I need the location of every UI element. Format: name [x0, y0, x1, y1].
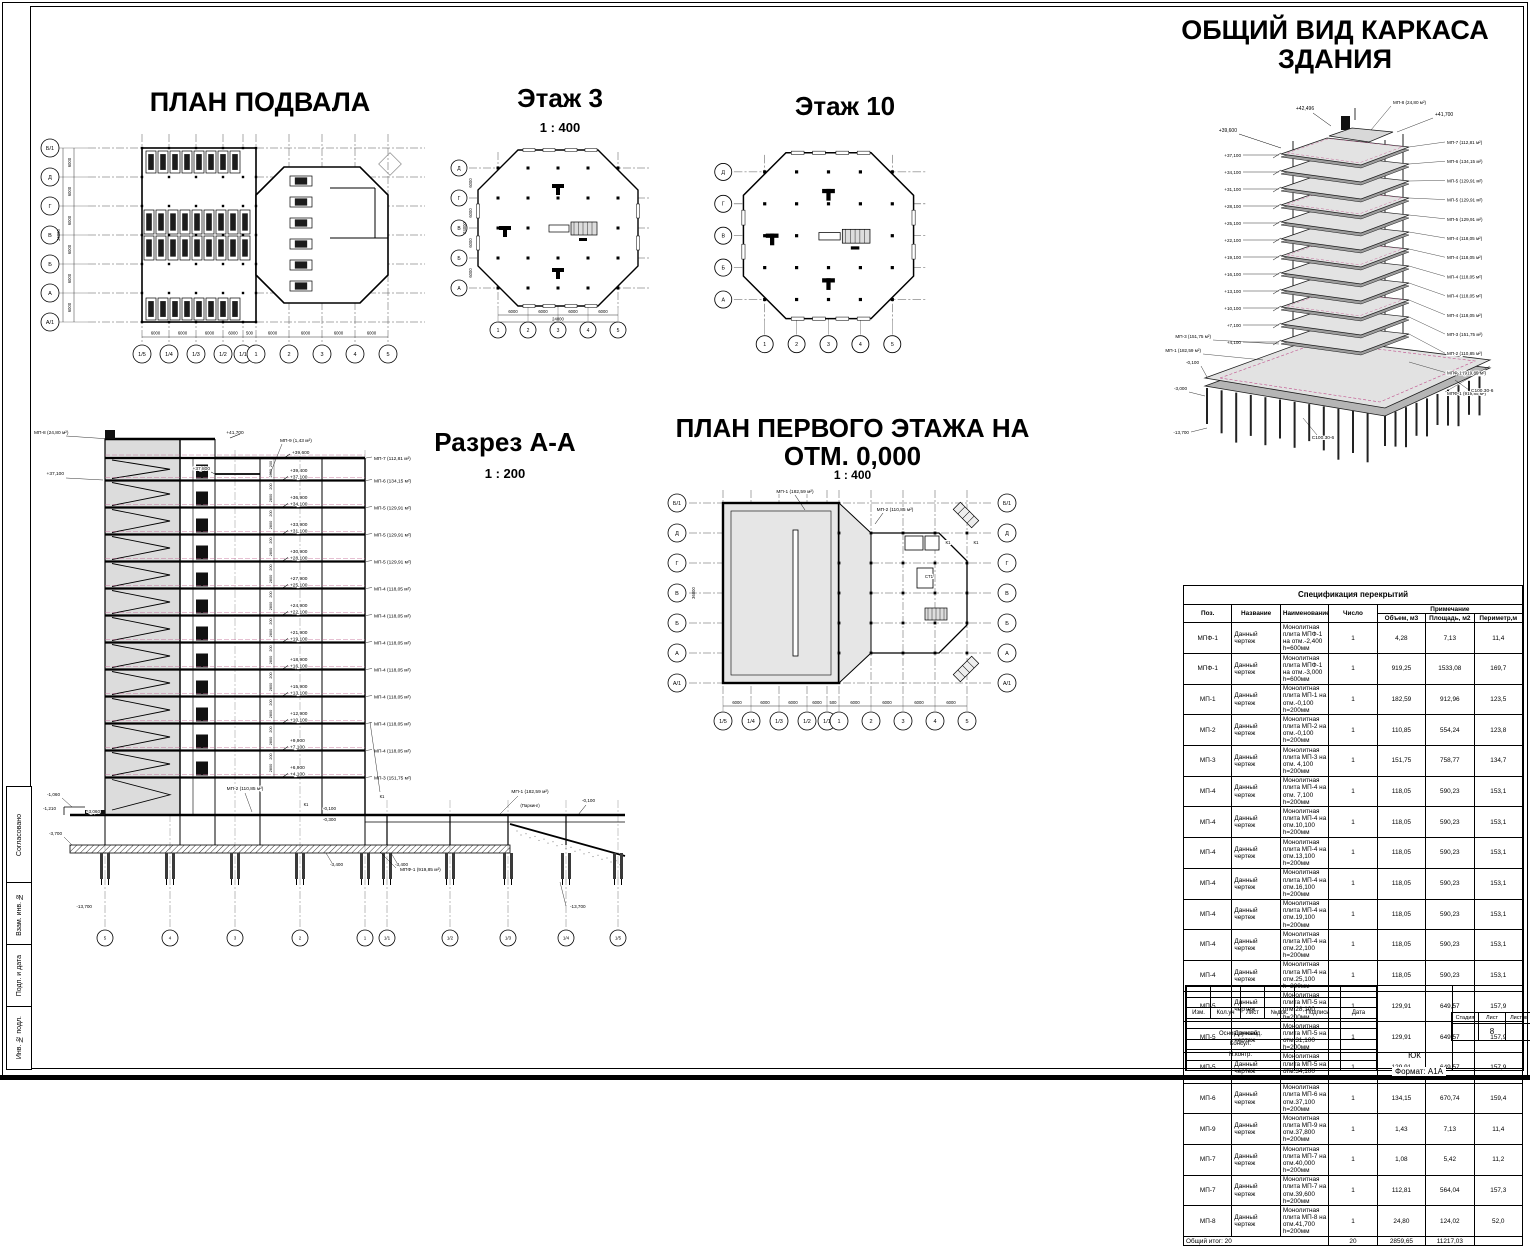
column [902, 532, 905, 535]
slab-label: МП-4 (118,05 м²) [374, 695, 411, 701]
spec-table: Спецификация перекрытий Поз. Название На… [1183, 585, 1523, 1246]
elevation-label: +39,600 [1219, 128, 1237, 134]
pile [295, 853, 298, 879]
edge-opening [836, 317, 849, 320]
spec-cell: Монолитная плита МП-2 на отм.-0,100 h=20… [1280, 715, 1328, 746]
elevation-label: -3,000 [1174, 386, 1187, 391]
line [1273, 170, 1281, 175]
spec-col-note: Примечание [1377, 605, 1522, 614]
leader-line [1409, 266, 1445, 276]
column [966, 622, 969, 625]
spec-total-volume: 2859,65 [1377, 1237, 1425, 1246]
static-element: Поз. Название Наименование Число Примеча… [1184, 605, 1523, 614]
spec-cell: 118,05 [1377, 838, 1425, 869]
leader-line [366, 507, 372, 508]
listov-header: Листов [1506, 1013, 1530, 1024]
spec-cell: 670,74 [1426, 1083, 1474, 1114]
axis-bubble-label: 1/2 [447, 936, 454, 941]
edge-opening [565, 305, 577, 308]
leader-line [366, 480, 372, 481]
slab-label: МП-1 (182,59 м²) [776, 489, 814, 495]
column [891, 234, 894, 237]
axis-bubble-label: 1/2 [803, 719, 811, 725]
spec-cell: Данный чертеж [1232, 654, 1280, 685]
spec-cell: 153,1 [1474, 807, 1522, 838]
axis-bubble-label: 1/3 [192, 352, 200, 358]
spec-cell: МПФ-1 [1184, 623, 1232, 654]
column [222, 292, 224, 294]
spec-cell: Данный чертеж [1232, 623, 1280, 654]
dimension-text: 6000 [468, 238, 473, 248]
slab-label: МП-8 (24,80 м²) [1393, 100, 1426, 105]
spec-cell: 153,1 [1474, 899, 1522, 930]
spec-col-volume: Объем, м3 [1377, 614, 1425, 623]
car-symbol [160, 154, 166, 170]
axis-bubble-label: Г [49, 204, 52, 210]
elevation-label: -13,700 [76, 904, 92, 909]
axis-bubble-label: Д [721, 170, 725, 176]
edge-opening [813, 317, 826, 320]
elevation-label: -0,300 [323, 817, 336, 822]
spec-row: МП-1Данный чертежМонолитная плита МП-1 н… [1184, 684, 1523, 715]
column-label: К1 [946, 540, 952, 545]
leader-line [1239, 134, 1281, 148]
spec-cell: Данный чертеж [1232, 1145, 1280, 1176]
column [255, 263, 257, 265]
column [838, 652, 841, 655]
column [838, 532, 841, 535]
dimension-text: 2800 [269, 737, 273, 745]
dimension-text: 6000 [178, 331, 188, 336]
dimension-text: 6000 [301, 331, 311, 336]
leader-line [366, 777, 372, 778]
column [242, 292, 244, 294]
column [617, 287, 620, 290]
spec-cell: 919,25 [1377, 654, 1425, 685]
line [1273, 340, 1281, 345]
spec-row: МП-9Данный чертежМонолитная плита МП-9 н… [1184, 1114, 1523, 1145]
dimension-text: 6000 [468, 178, 473, 188]
slab-label: МП-3 (151,75 м²) [1447, 332, 1483, 337]
elevator-door [196, 600, 208, 614]
stamp-approved: Согласовано [6, 786, 32, 884]
dimension-text: 6000 [228, 331, 238, 336]
title-block-cell [1295, 1029, 1341, 1040]
column [497, 197, 500, 200]
elevation-label: +31,100 [290, 529, 308, 535]
overview-title-line2: ЗДАНИЯ [1278, 44, 1392, 74]
axis-bubble-label: А [48, 291, 52, 297]
axis-bubble-label: 5 [386, 352, 389, 358]
spec-cell: 11,4 [1474, 1114, 1522, 1145]
car-symbol [182, 213, 188, 230]
spec-row: МП-6Данный чертежМонолитная плита МП-6 н… [1184, 1083, 1523, 1114]
spec-cell: 1 [1329, 868, 1377, 899]
wall-symbol [503, 226, 507, 237]
dimension-text: 6000 [334, 331, 344, 336]
wall-symbol [556, 268, 560, 279]
pile [613, 853, 616, 879]
soil-dot [544, 839, 545, 840]
slab-label: МП-3 (151,75 м²) [1175, 334, 1211, 339]
slab-label: МП-6 (134,15 м²) [1447, 159, 1483, 164]
column [168, 205, 170, 207]
title-block-cell [1295, 1039, 1341, 1050]
column [891, 266, 894, 269]
dimension-text: 200 [269, 483, 273, 489]
soil-dot [548, 843, 549, 844]
title-block-cell [1241, 987, 1265, 998]
spec-row: МП-8Данный чертежМонолитная плита МП-8 н… [1184, 1206, 1523, 1237]
elevation-label: +41,700 [1435, 112, 1453, 118]
dimension-text: 500 [830, 700, 838, 705]
spec-cell: Монолитная плита МП-6 на отм.37,100 h=20… [1280, 1083, 1328, 1114]
spec-cell: Данный чертеж [1232, 1083, 1280, 1114]
column [527, 227, 530, 230]
dimension-text: 6000 [67, 273, 72, 283]
spec-table-wrap: Спецификация перекрытий Поз. Название На… [1183, 585, 1523, 1246]
soil-dot [535, 836, 536, 837]
dimension-text: 6000 [538, 309, 548, 314]
edge-opening [523, 305, 535, 308]
column [859, 202, 862, 205]
column [859, 170, 862, 173]
title-block-cell [1211, 987, 1241, 998]
elevation-label: +19,100 [1224, 255, 1241, 260]
elevation-label: +13,100 [290, 691, 308, 697]
elevation-label: +37,800 [193, 466, 211, 472]
spec-cell: Монолитная плита МП-3 на отм. 4,100 h=20… [1280, 746, 1328, 777]
soil-dot [562, 844, 563, 845]
static-element: Изм. Кол.уч Лист №док. Подпись Дата Осно… [1187, 987, 1377, 1071]
slab-label: МП-5 (129,91 м²) [1447, 178, 1483, 183]
elevation-label: +33,900 [290, 522, 308, 528]
title-block-cell [1295, 997, 1341, 1008]
column-label: К1 [304, 802, 309, 807]
spec-cell: 151,75 [1377, 746, 1425, 777]
spec-cell: 912,96 [1426, 684, 1474, 715]
pile [165, 853, 168, 879]
pile [302, 853, 305, 879]
spec-cell: 758,77 [1426, 746, 1474, 777]
spec-cell: 5,42 [1426, 1145, 1474, 1176]
column [617, 197, 620, 200]
spec-row: МП-3Данный чертежМонолитная плита МП-3 н… [1184, 746, 1523, 777]
wall-symbol [851, 246, 860, 249]
axis-bubble-label: Б/1 [1003, 501, 1011, 507]
leader-line [1409, 249, 1445, 257]
spec-cell: 1,43 [1377, 1114, 1425, 1145]
static-element: МПФ-1Данный чертежМонолитная плита МПФ-1… [1184, 623, 1523, 1237]
slab-label: МП-5 (129,91 м²) [1447, 217, 1483, 222]
axis-bubble-label: 3 [827, 342, 830, 348]
dimension-text: 200 [269, 510, 273, 516]
column [141, 176, 143, 178]
spec-col-area: Площадь, м2 [1426, 614, 1474, 623]
column [242, 147, 244, 149]
axis-bubble-label: Б [675, 621, 679, 627]
drawing-sheet: Согласовано Взам. инв. № Подп. и дата Ин… [0, 0, 1530, 1080]
spec-row: МП-4Данный чертежМонолитная плита МП-4 н… [1184, 930, 1523, 961]
line [1191, 428, 1207, 432]
slab-mp1 [723, 503, 839, 683]
leader-line [1409, 215, 1445, 219]
spec-cell: 118,05 [1377, 899, 1425, 930]
rev-header-data: Дата [1341, 1008, 1377, 1019]
column [527, 287, 530, 290]
title-block-cell [1341, 1050, 1377, 1061]
title-block-cell [1341, 1039, 1377, 1050]
column [141, 292, 143, 294]
axis-bubble-label: 5 [965, 719, 968, 725]
elevation-label: +7,100 [290, 745, 305, 751]
elevation-label: -13,700 [1173, 430, 1189, 435]
column [222, 263, 224, 265]
axis-bubble-label: 3 [320, 352, 323, 358]
spec-cell: Монолитная плита МП-4 на отм.10,100 h=20… [1280, 807, 1328, 838]
title-block-cell [1341, 1018, 1377, 1029]
axis-bubble-label: Г [676, 561, 679, 567]
column [255, 147, 257, 149]
slab-label: МП-4 (118,05 м²) [374, 722, 411, 728]
dimension-text: 200 [269, 753, 273, 759]
soil-dot [598, 855, 599, 856]
elevation-label: +13,100 [1224, 289, 1241, 294]
soil-dot [575, 851, 576, 852]
dimension-text: 2800 [269, 602, 273, 610]
car-symbol [148, 154, 154, 170]
spec-cell: Данный чертеж [1232, 1206, 1280, 1237]
car-symbol [206, 213, 212, 230]
pile [568, 853, 571, 879]
floor3-scale: 1 : 400 [460, 120, 660, 135]
dimension-text: 6000 [468, 268, 473, 278]
edge-opening [857, 317, 870, 320]
axis-bubble-label: 1 [837, 719, 840, 725]
wall-label: СТ1 [925, 574, 934, 579]
spec-col-designation: Название [1232, 605, 1280, 623]
spec-cell: Монолитная плита МП-1 на отм.-0,100 h=20… [1280, 684, 1328, 715]
dimension-text: 6000 [151, 331, 161, 336]
axis-bubble-label: А/1 [673, 681, 681, 687]
column [795, 266, 798, 269]
edge-opening [477, 236, 480, 250]
elevation-label: +21,900 [290, 630, 308, 636]
car-symbol [218, 239, 224, 256]
dimension-text: 6000 [67, 186, 72, 196]
spec-cell: 1 [1329, 1114, 1377, 1145]
wall-symbol [556, 184, 560, 195]
column [222, 147, 224, 149]
elevation-label: +15,900 [290, 684, 308, 690]
slab-label: МП-5 (129,91 м²) [374, 533, 412, 539]
stage-table: Стадия Лист Листов 8 [1451, 1012, 1530, 1041]
column [195, 321, 197, 323]
pile [367, 853, 370, 879]
overview-title: ОБЩИЙ ВИД КАРКАСА ЗДАНИЯ [1145, 16, 1525, 74]
column [141, 263, 143, 265]
spec-cell: 1 [1329, 838, 1377, 869]
static-element: Изм. Кол.уч Лист №док. Подпись Дата [1187, 1008, 1377, 1019]
spec-cell: МП-4 [1184, 838, 1232, 869]
elevation-label: +37,100 [47, 471, 65, 477]
stair-symbol [953, 656, 978, 681]
spec-cell: Данный чертеж [1232, 1175, 1280, 1206]
car-symbol [194, 213, 200, 230]
basement-plan-drawing: Б/1ДГВБАА/11/51/41/31/21/112345600060006… [30, 118, 440, 368]
axis-bubble-label: А [675, 651, 679, 657]
car-symbol [172, 301, 178, 317]
leader-line [366, 642, 372, 643]
column [966, 532, 969, 535]
leader-line [245, 793, 252, 812]
axis-bubble-label: Г [458, 196, 461, 202]
spec-cell: Данный чертеж [1232, 838, 1280, 869]
floor3-title: Этаж 3 [460, 84, 660, 112]
wall-symbol [770, 234, 774, 246]
slab-label: МП-4 (118,05 м²) [374, 587, 411, 593]
stair-symbol [953, 502, 978, 527]
leader-line [1409, 180, 1445, 181]
axis-bubble-label: А/1 [46, 320, 54, 326]
rev-header-koluch: Кол.уч [1211, 1008, 1241, 1019]
elevation-label: +25,100 [1224, 221, 1241, 226]
column [617, 227, 620, 230]
car-symbol [160, 301, 166, 317]
spec-table-title: Спецификация перекрытий [1184, 586, 1523, 605]
title-block-cell [1265, 997, 1295, 1008]
slab-label: МП-7 (112,81 м²) [374, 456, 411, 462]
column [497, 167, 500, 170]
column [195, 147, 197, 149]
slab-mp2-part [839, 503, 871, 683]
column [827, 298, 830, 301]
spec-cell: 153,1 [1474, 930, 1522, 961]
car-symbol [220, 154, 226, 170]
dimension-text: 6000 [788, 700, 798, 705]
dimension-text: 200 [269, 645, 273, 651]
column [870, 652, 873, 655]
column [557, 197, 560, 200]
spec-cell: МП-7 [1184, 1175, 1232, 1206]
column [195, 176, 197, 178]
spec-cell: Данный чертеж [1232, 1114, 1280, 1145]
dimension-text: 6000 [760, 700, 770, 705]
soil-dot [584, 853, 585, 854]
spec-total-perimeter [1474, 1237, 1522, 1246]
spec-row: МП-4Данный чертежМонолитная плита МП-4 н… [1184, 899, 1523, 930]
spec-cell: 1 [1329, 807, 1377, 838]
car-symbol [182, 239, 188, 256]
wall-symbol [826, 278, 830, 290]
sheet-number: 8 [1479, 1023, 1506, 1040]
floor10-title: Этаж 10 [740, 92, 950, 120]
slab-label: МПФ-1 (919,85 м²) [1447, 370, 1487, 375]
spec-cell: МПФ-1 [1184, 654, 1232, 685]
slab-label: МП-2 (110,85 м²) [1447, 351, 1483, 356]
column [195, 234, 197, 236]
column [934, 652, 937, 655]
car-symbol [158, 239, 164, 256]
column [870, 592, 873, 595]
elevation-label: +10,100 [1224, 306, 1241, 311]
axis-bubble-label: Б [721, 266, 725, 272]
axis-bubble-label: 1/2 [219, 352, 227, 358]
car-symbol [295, 219, 307, 226]
elevation-label: +22,100 [290, 610, 308, 616]
static-element: Общий итог: 20 20 2859,65 11217,03 [1184, 1237, 1523, 1246]
edge-opening [791, 317, 804, 320]
column [891, 170, 894, 173]
slab-label: МП-6 (134,15 м²) [374, 479, 412, 485]
dimension-text: 2800 [269, 548, 273, 556]
axis-bubble-label: 4 [587, 328, 590, 334]
first-floor-title-line2: ОТМ. 0,000 [784, 441, 921, 471]
axis-bubble-label: 1/4 [747, 719, 755, 725]
basement-plan-title: ПЛАН ПОДВАЛА [95, 88, 425, 117]
title-block-cell [1295, 987, 1341, 998]
axis-bubble-label: Б [1005, 621, 1009, 627]
stamp-vzam: Взам. инв. № [6, 882, 32, 946]
elevator-door [196, 573, 208, 587]
elevator-door [196, 654, 208, 668]
column [527, 167, 530, 170]
car-symbol [158, 213, 164, 230]
car-symbol [295, 177, 307, 184]
dimension-text: 500 [246, 331, 254, 336]
axis-bubble-label: Д [1005, 531, 1009, 537]
edge-opening [857, 151, 870, 154]
dimension-text: 6000 [205, 331, 215, 336]
title-block-cell [1187, 997, 1211, 1008]
spec-cell: 1533,08 [1426, 654, 1474, 685]
slab-label: МП-5 (129,91 м²) [374, 506, 412, 512]
soil-dot [580, 849, 581, 850]
car-symbol [208, 154, 214, 170]
sign-row-konsul: Консул. [1187, 1039, 1295, 1050]
title-block-cell [1341, 1060, 1377, 1071]
elevation-label: +4,100 [1227, 340, 1242, 345]
column [870, 532, 873, 535]
title-block-cell [1295, 1050, 1341, 1061]
elevation-label: +4,100 [290, 772, 305, 778]
line [1273, 289, 1281, 294]
axis-bubble-label: 1/5 [138, 352, 146, 358]
column [617, 257, 620, 260]
spec-cell: 52,0 [1474, 1206, 1522, 1237]
spec-cell: 110,85 [1377, 715, 1425, 746]
column [870, 622, 873, 625]
axis-bubble-label: Б/1 [46, 146, 54, 152]
line [1201, 366, 1207, 377]
line [1273, 238, 1281, 243]
column [966, 652, 969, 655]
dimension-text: 200 [269, 537, 273, 543]
axis-bubble-label: 2 [287, 352, 290, 358]
leader-line [366, 615, 372, 616]
column [587, 167, 590, 170]
column [891, 298, 894, 301]
stamp-approved-label: Согласовано [16, 814, 23, 856]
edge-opening [637, 204, 640, 218]
spec-cell: МП-4 [1184, 930, 1232, 961]
column [795, 234, 798, 237]
first-floor-plan-drawing: Б/1Б/1ДДГГВВББААА/1А/11/51/41/31/21/1123… [655, 468, 1055, 753]
axis-bubble-label: Г [1006, 561, 1009, 567]
spec-cell: 11,4 [1474, 623, 1522, 654]
static-element: Спецификация перекрытий Поз. Название На… [1184, 586, 1523, 623]
line [1273, 204, 1281, 209]
